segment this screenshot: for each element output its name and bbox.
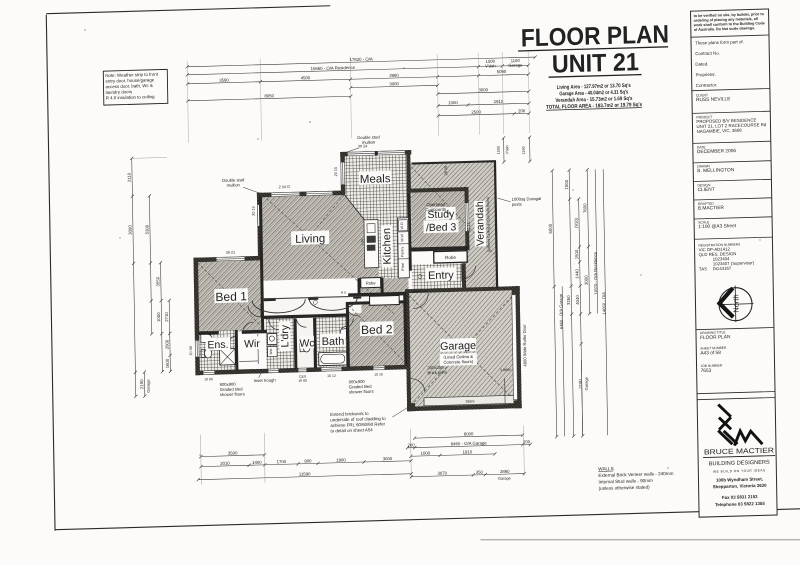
svg-text:7.8e: 7.8e (360, 239, 364, 246)
svg-text:200: 200 (523, 439, 531, 444)
svg-text:shower floors: shower floors (220, 391, 245, 397)
svg-text:B'fast: B'fast (401, 263, 405, 271)
svg-text:1910: 1910 (494, 99, 504, 104)
svg-text:6000: 6000 (464, 431, 474, 436)
svg-text:W.O: W.O (400, 222, 404, 229)
svg-text:2190: 2190 (578, 379, 583, 389)
svg-text:19 08: 19 08 (298, 379, 307, 383)
svg-text:V'dah: V'dah (505, 145, 509, 154)
svg-text:DRAWING TITLE: DRAWING TITLE (700, 330, 727, 335)
svg-text:3000: 3000 (478, 87, 488, 92)
svg-text:3070: 3070 (437, 470, 447, 475)
svg-text:posts: posts (512, 201, 522, 206)
svg-text:Fax 03 5831 2153: Fax 03 5831 2153 (722, 494, 758, 500)
svg-text:Kitchen: Kitchen (381, 228, 394, 265)
svg-text:1440: 1440 (574, 269, 579, 279)
svg-text:8050: 8050 (264, 93, 274, 98)
svg-text:Store: Store (465, 399, 474, 403)
svg-text:Meals: Meals (360, 173, 391, 186)
svg-text:5300: 5300 (144, 224, 149, 234)
svg-text:1500: 1500 (564, 179, 569, 189)
svg-text:900: 900 (304, 458, 312, 463)
svg-text:Bath: Bath (322, 336, 345, 349)
svg-text:1000: 1000 (156, 312, 161, 322)
svg-text:1500: 1500 (574, 249, 579, 259)
svg-text:5090: 5090 (497, 69, 507, 74)
svg-text:1900: 1900 (336, 457, 346, 462)
svg-text:Brick piers: Brick piers (427, 370, 447, 376)
svg-text:Robe: Robe (366, 280, 377, 285)
svg-text:Robe: Robe (445, 255, 457, 260)
svg-text:Concrete floors): Concrete floors) (443, 359, 473, 365)
svg-text:DG43167: DG43167 (713, 266, 732, 272)
svg-text:L'dry: L'dry (279, 324, 291, 348)
svg-text:17820 - O/A: 17820 - O/A (350, 56, 373, 62)
svg-text:10 06: 10 06 (189, 346, 193, 356)
svg-text:V'dah: V'dah (485, 63, 496, 68)
svg-text:RUSS NEVILLE: RUSS NEVILLE (696, 96, 730, 103)
svg-text:Wir: Wir (244, 338, 260, 350)
svg-text:11590: 11590 (299, 471, 311, 476)
svg-text:2190: 2190 (139, 379, 144, 389)
svg-text:Garage: Garage (440, 340, 476, 353)
svg-text:20 15: 20 15 (252, 206, 256, 216)
svg-text:Entry: Entry (428, 269, 454, 282)
svg-text:TAS: TAS (699, 266, 707, 271)
svg-text:Dated.: Dated. (695, 61, 708, 66)
svg-text:39 21: 39 21 (226, 251, 236, 255)
svg-text:4500: 4500 (301, 75, 311, 80)
svg-text:(910): (910) (574, 217, 579, 228)
svg-text:Wc: Wc (299, 337, 314, 349)
svg-text:1000: 1000 (421, 450, 431, 455)
svg-text:DATE: DATE (697, 145, 707, 149)
svg-text:Bed 1: Bed 1 (215, 289, 247, 304)
svg-text:2000: 2000 (164, 339, 169, 349)
svg-text:2 34 O: 2 34 O (279, 185, 291, 189)
svg-text:/Bed 3: /Bed 3 (426, 221, 457, 234)
svg-text:DECEMBER 2006: DECEMBER 2006 (697, 148, 737, 155)
svg-text:CLIENT: CLIENT (698, 187, 715, 193)
svg-text:7653: 7653 (701, 368, 712, 374)
svg-text:3000: 3000 (389, 81, 399, 86)
svg-text:4040: 4040 (575, 295, 580, 305)
svg-text:30 24: 30 24 (358, 144, 368, 148)
svg-text:15 16: 15 16 (374, 372, 383, 376)
svg-text:10 06: 10 06 (204, 377, 213, 381)
svg-text:3590: 3590 (219, 77, 229, 82)
svg-text:A43 of 58: A43 of 58 (700, 350, 721, 357)
svg-text:M.W: M.W (400, 234, 404, 242)
svg-text:1400: 1400 (252, 460, 262, 465)
svg-text:Garage: Garage (146, 379, 151, 393)
svg-text:3960: 3960 (389, 73, 399, 78)
svg-text:3550: 3550 (155, 276, 160, 286)
svg-text:SHEET NUMBER: SHEET NUMBER (700, 346, 727, 351)
svg-text:200: 200 (518, 108, 526, 113)
svg-text:Verandah: Verandah (474, 201, 487, 246)
svg-text:UNIT 21: UNIT 21 (552, 48, 640, 78)
svg-text:1910: 1910 (463, 449, 473, 454)
svg-text:3260: 3260 (566, 295, 571, 305)
svg-text:Garage: Garage (508, 62, 523, 67)
svg-text:B.MACTIER: B.MACTIER (698, 205, 725, 212)
svg-text:Inset trough: Inset trough (254, 377, 277, 383)
svg-text:mullion: mullion (227, 182, 241, 187)
svg-text:1160: 1160 (522, 146, 526, 154)
svg-text:1500: 1500 (497, 146, 501, 155)
svg-text:North: North (731, 294, 740, 313)
svg-text:FLOOR PLAN: FLOOR PLAN (700, 334, 731, 341)
svg-text:Garage: Garage (498, 476, 511, 480)
svg-text:2860: 2860 (500, 469, 510, 474)
svg-text:1:100 @A3 Sheet: 1:100 @A3 Sheet (698, 223, 737, 230)
svg-text:Pantry: Pantry (400, 246, 404, 257)
svg-text:Cupboards: Cupboards (425, 207, 446, 213)
svg-text:B. MELLINGTON: B. MELLINGTON (697, 167, 735, 174)
svg-text:10 12: 10 12 (327, 374, 336, 378)
svg-text:28 09: 28 09 (444, 166, 448, 176)
svg-text:Contract No.: Contract No. (695, 50, 720, 56)
svg-text:1000: 1000 (448, 100, 458, 105)
svg-text:Contractor.: Contractor. (696, 82, 718, 88)
svg-text:350: 350 (476, 469, 484, 474)
svg-text:6 s: 6 s (341, 290, 346, 294)
svg-text:Lintel: Lintel (500, 367, 510, 372)
svg-text:WALLS: WALLS (598, 466, 613, 471)
svg-text:4800 Wide Roller Door: 4800 Wide Roller Door (522, 324, 528, 367)
svg-text:6460 - O/A Garage: 6460 - O/A Garage (451, 440, 488, 446)
svg-text:3000: 3000 (584, 275, 589, 285)
svg-text:200: 200 (407, 442, 415, 447)
svg-text:2500: 2500 (471, 109, 481, 114)
svg-text:30 15: 30 15 (467, 222, 471, 232)
svg-text:2010: 2010 (220, 461, 230, 466)
svg-text:1700: 1700 (277, 459, 287, 464)
svg-text:Bed 2: Bed 2 (361, 322, 393, 337)
svg-text:3000: 3000 (127, 225, 132, 235)
svg-text:Garage: Garage (584, 376, 589, 390)
svg-text:3000: 3000 (383, 456, 393, 461)
svg-text:2710: 2710 (164, 312, 169, 322)
svg-text:20 15: 20 15 (334, 167, 338, 177)
svg-text:Ens.: Ens. (207, 339, 228, 352)
svg-text:7600: 7600 (582, 203, 587, 213)
svg-text:Living: Living (295, 233, 325, 246)
svg-text:3500: 3500 (228, 450, 238, 455)
svg-text:WM: WM (269, 348, 273, 354)
svg-text:JOB NUMBER: JOB NUMBER (701, 363, 723, 368)
svg-text:shower floors: shower floors (349, 389, 374, 395)
svg-text:6000: 6000 (548, 223, 553, 233)
svg-text:1600: 1600 (165, 358, 170, 368)
svg-text:2110: 2110 (127, 172, 132, 182)
svg-text:Proprietor.: Proprietor. (696, 72, 716, 78)
